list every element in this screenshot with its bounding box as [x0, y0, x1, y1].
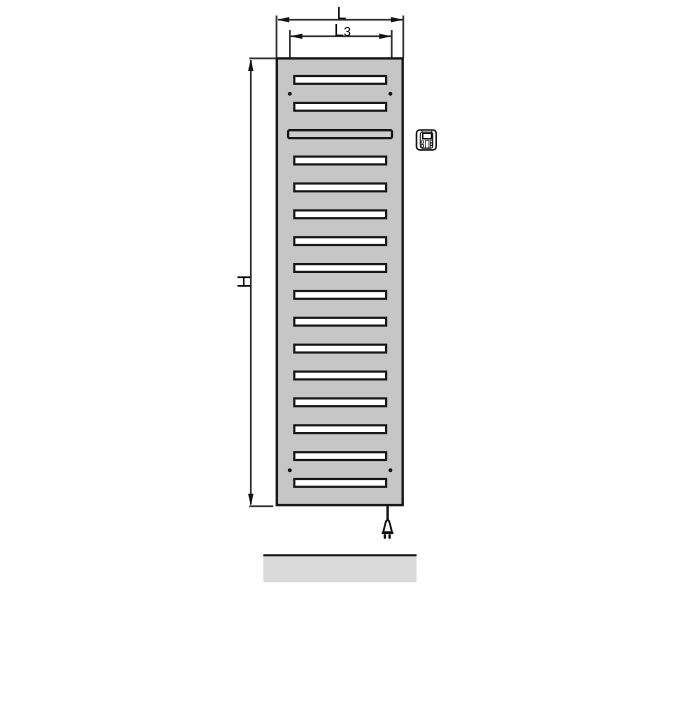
svg-text:H: H	[234, 275, 255, 288]
